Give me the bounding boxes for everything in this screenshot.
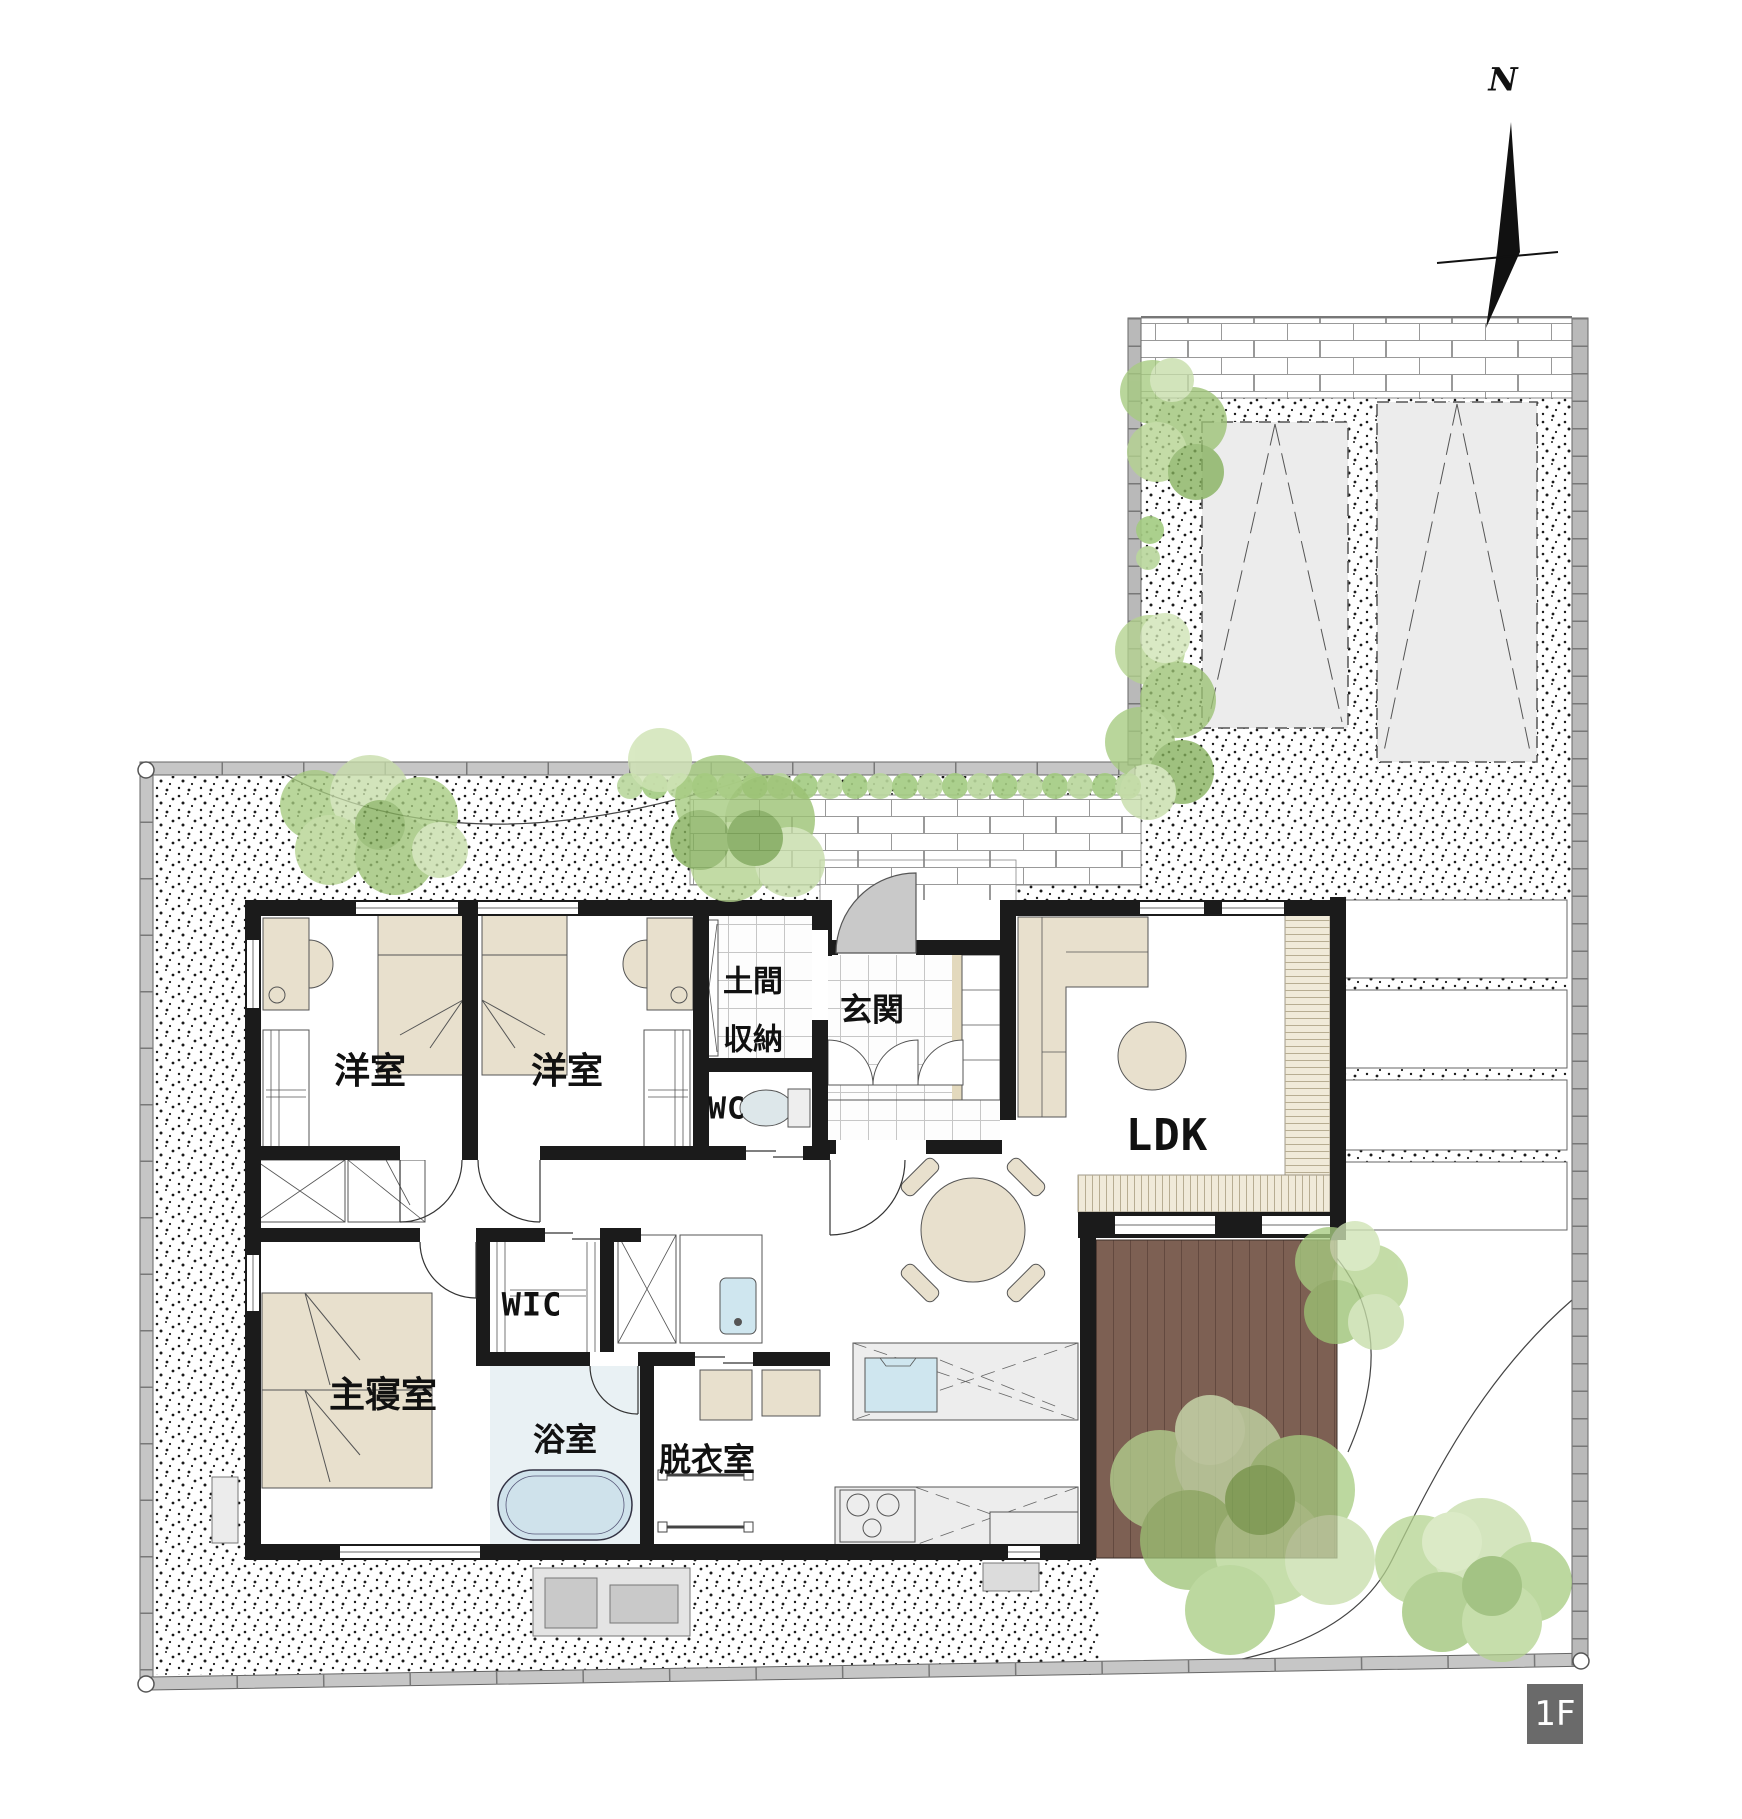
stove bbox=[840, 1490, 915, 1542]
toilet-tank bbox=[788, 1089, 810, 1127]
label-doma-storage-2: 収納 bbox=[723, 1024, 783, 1057]
label-dressing-room: 脱衣室 bbox=[659, 1442, 755, 1477]
side-yard-slabs bbox=[1340, 900, 1567, 1230]
tree bbox=[1295, 1221, 1408, 1350]
tree bbox=[1375, 1498, 1572, 1662]
floor-badge: 1F bbox=[1527, 1684, 1583, 1744]
corner-marker bbox=[1573, 1653, 1589, 1669]
closet-west bbox=[263, 1030, 309, 1148]
corner-marker bbox=[138, 762, 154, 778]
label-master-bedroom: 主寝室 bbox=[329, 1376, 437, 1416]
label-wic: WIC bbox=[502, 1287, 563, 1322]
label-ldk: LDK bbox=[1126, 1112, 1208, 1160]
shoe-cabinet bbox=[962, 955, 1000, 1100]
label-bedroom-east: 洋室 bbox=[531, 1052, 603, 1092]
label-wc: WC bbox=[708, 1093, 746, 1126]
site-plan-drawing bbox=[0, 0, 1742, 1819]
dining-table bbox=[921, 1178, 1025, 1282]
laundry-cabinet-2 bbox=[762, 1370, 820, 1416]
side-table bbox=[1118, 1022, 1186, 1090]
hedge-row bbox=[617, 516, 1164, 799]
north-arrow-icon bbox=[1437, 122, 1558, 328]
label-bedroom-west: 洋室 bbox=[334, 1052, 406, 1092]
bathtub bbox=[498, 1470, 632, 1540]
north-label: N bbox=[1488, 62, 1517, 97]
label-bathroom: 浴室 bbox=[533, 1422, 597, 1457]
laundry-cabinet bbox=[700, 1370, 752, 1420]
floor-plan-canvas: N 洋室 洋室 土間 収納 玄関 WC LDK WIC 主寝室 浴室 脱衣室 1… bbox=[0, 0, 1742, 1819]
label-entrance: 玄関 bbox=[840, 992, 904, 1027]
parking-stall-2 bbox=[1377, 402, 1537, 762]
corner-marker bbox=[138, 1676, 154, 1692]
label-doma-storage-1: 土間 bbox=[723, 966, 783, 999]
toilet bbox=[740, 1090, 792, 1126]
parking-stall-1 bbox=[1202, 422, 1348, 728]
